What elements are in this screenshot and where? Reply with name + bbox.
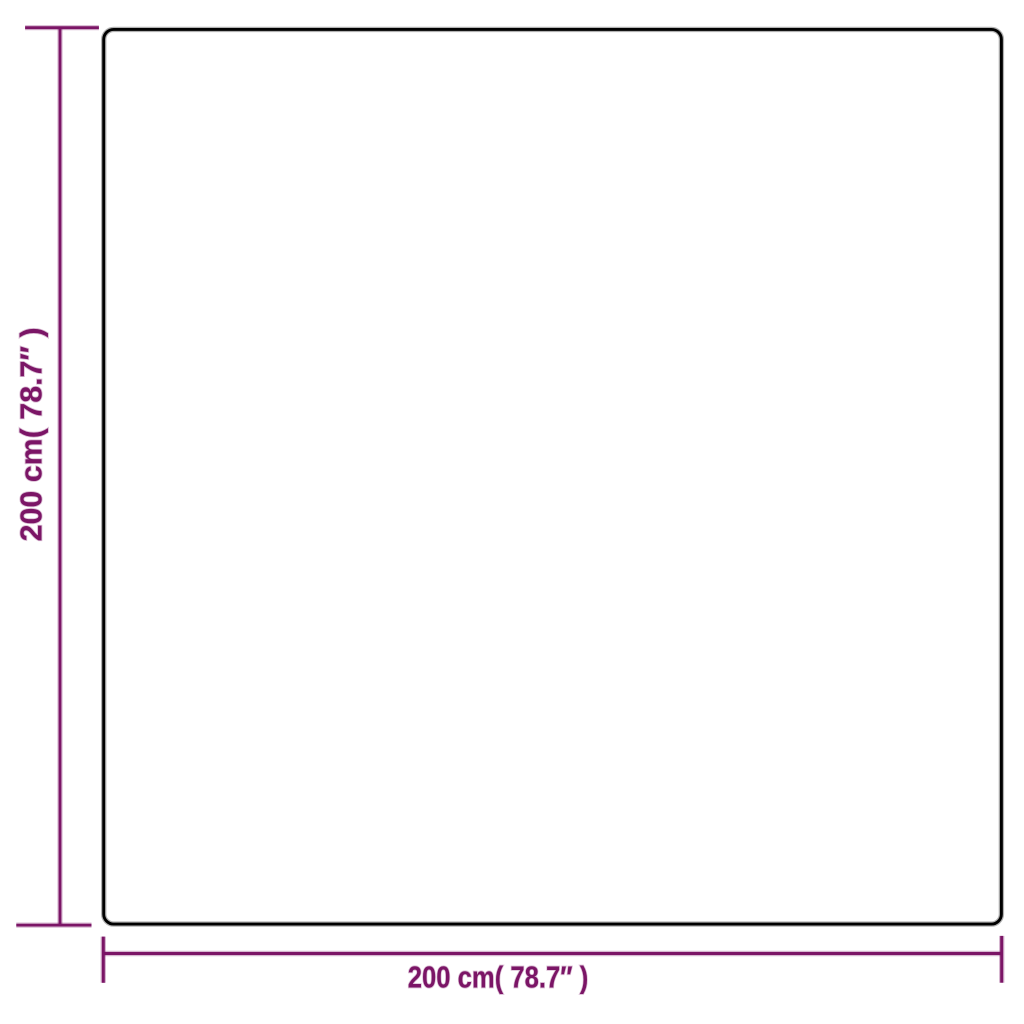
svg-text:200 cm( 78.7″ ): 200 cm( 78.7″ ) (408, 960, 589, 995)
svg-text:200 cm( 78.7″ ): 200 cm( 78.7″ ) (14, 327, 49, 541)
